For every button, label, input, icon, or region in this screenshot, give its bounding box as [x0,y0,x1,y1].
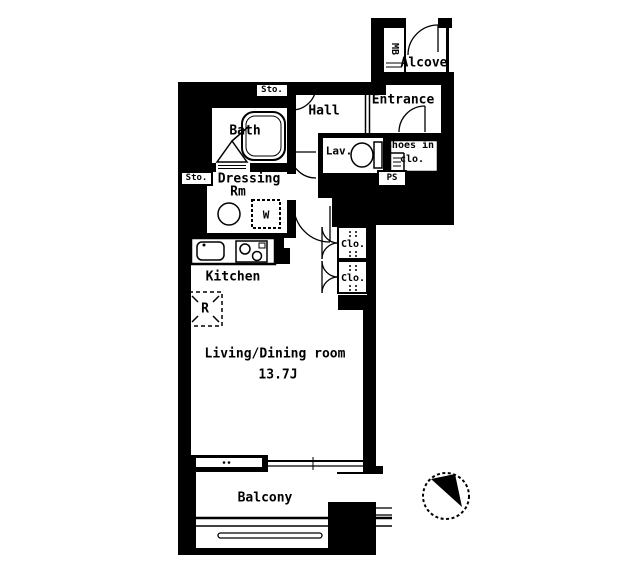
storage-upper-label: Sto. [255,83,289,98]
room-label-living-dining: Living/Dining room [205,348,346,361]
room-label-dressing-line2: Rm [230,186,246,199]
floor-plan: Hall Entrance Alcove Bath Lav. Shoes in … [0,0,640,569]
room-label-shoes-closet-line2: clo. [400,155,424,165]
room-label-balcony: Balcony [238,492,293,505]
room-label-alcove: Alcove [401,57,448,70]
front-door-arc [399,106,425,132]
storage-lower-text: Sto. [186,174,208,183]
closet-upper-label: Clo. [341,240,365,250]
room-label-hall: Hall [308,105,339,118]
storage-upper-text: Sto. [261,86,283,95]
washbasin-icon [218,203,240,225]
room-label-living-size: 13.7J [258,369,297,382]
meter-box-label: MB [389,43,399,55]
alcove-door-arc [408,25,438,55]
room-label-lavatory: Lav. [326,146,353,157]
room-label-entrance: Entrance [372,94,435,107]
pipe-shaft-text: PS [387,174,398,183]
entrance-step-lines [366,95,370,133]
washer-label: W [263,210,270,221]
room-label-shoes-closet-line1: Shoes in [386,141,434,151]
storage-lower-label: Sto. [180,171,213,186]
pipe-shaft-label: PS [377,170,407,187]
room-label-bath: Bath [229,125,260,138]
closet-lower-door-arcs [322,261,338,293]
room-label-dressing-line1: Dressing [218,173,281,186]
north-compass-icon [423,473,469,519]
closet-lower-label: Clo. [341,274,365,284]
floor-plan-drawing [0,0,640,569]
room-label-kitchen: Kitchen [206,271,261,284]
refrigerator-label: R [201,303,209,316]
